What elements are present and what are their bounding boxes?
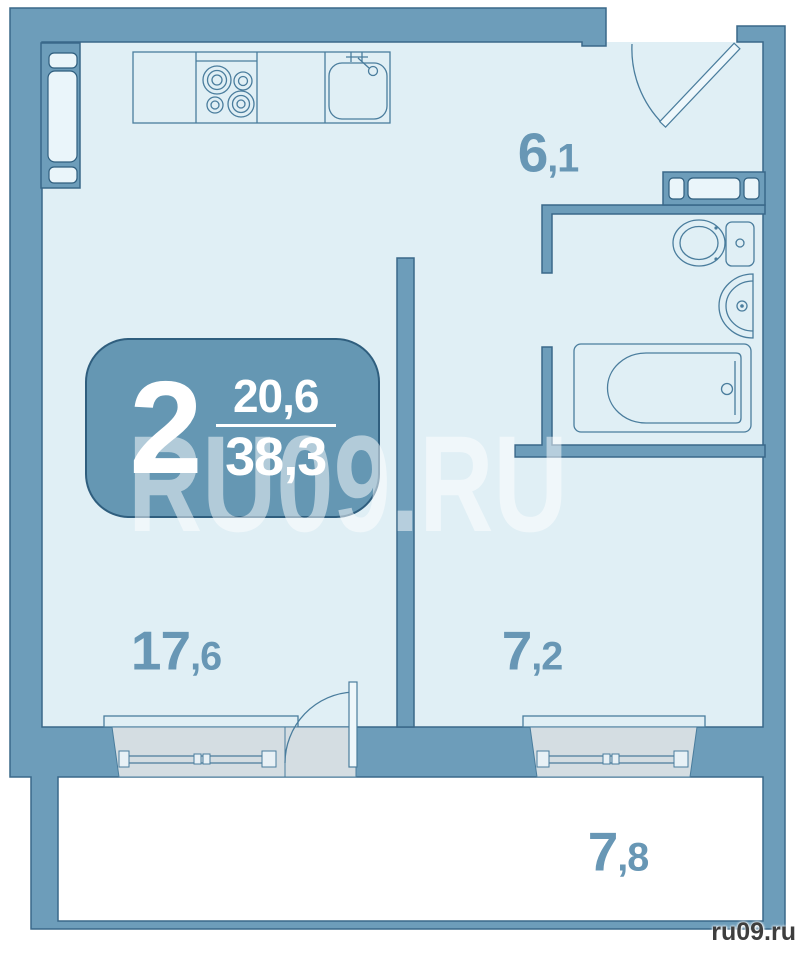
room-area-label-living-room: 17,6 [131, 624, 221, 679]
area-fraction: 20,6 38,3 [216, 373, 336, 484]
site-credit-link[interactable]: ru09.ru [711, 918, 796, 947]
bathtub-icon [574, 344, 751, 432]
toilet-icon [673, 220, 754, 266]
closet-icon [41, 43, 80, 188]
floor-plan: 6,1 17,6 7,2 7,8 2 20,6 38,3 RU09.RU ru0… [0, 0, 810, 958]
total-area-value: 38,3 [225, 430, 326, 484]
living-area-value: 20,6 [233, 373, 319, 419]
room-area-label-hallway: 6,1 [518, 126, 579, 181]
room-area-label-bedroom: 7,2 [502, 624, 563, 679]
central-partition-wall [397, 258, 414, 727]
living-room-window-icon [104, 716, 298, 777]
room-area-label-balcony: 7,8 [588, 825, 649, 880]
cabinet-icon [663, 172, 765, 205]
apartment-info-badge: 2 20,6 38,3 [85, 338, 380, 518]
bedroom-window-icon [523, 716, 705, 777]
rooms-count: 2 [129, 372, 199, 484]
